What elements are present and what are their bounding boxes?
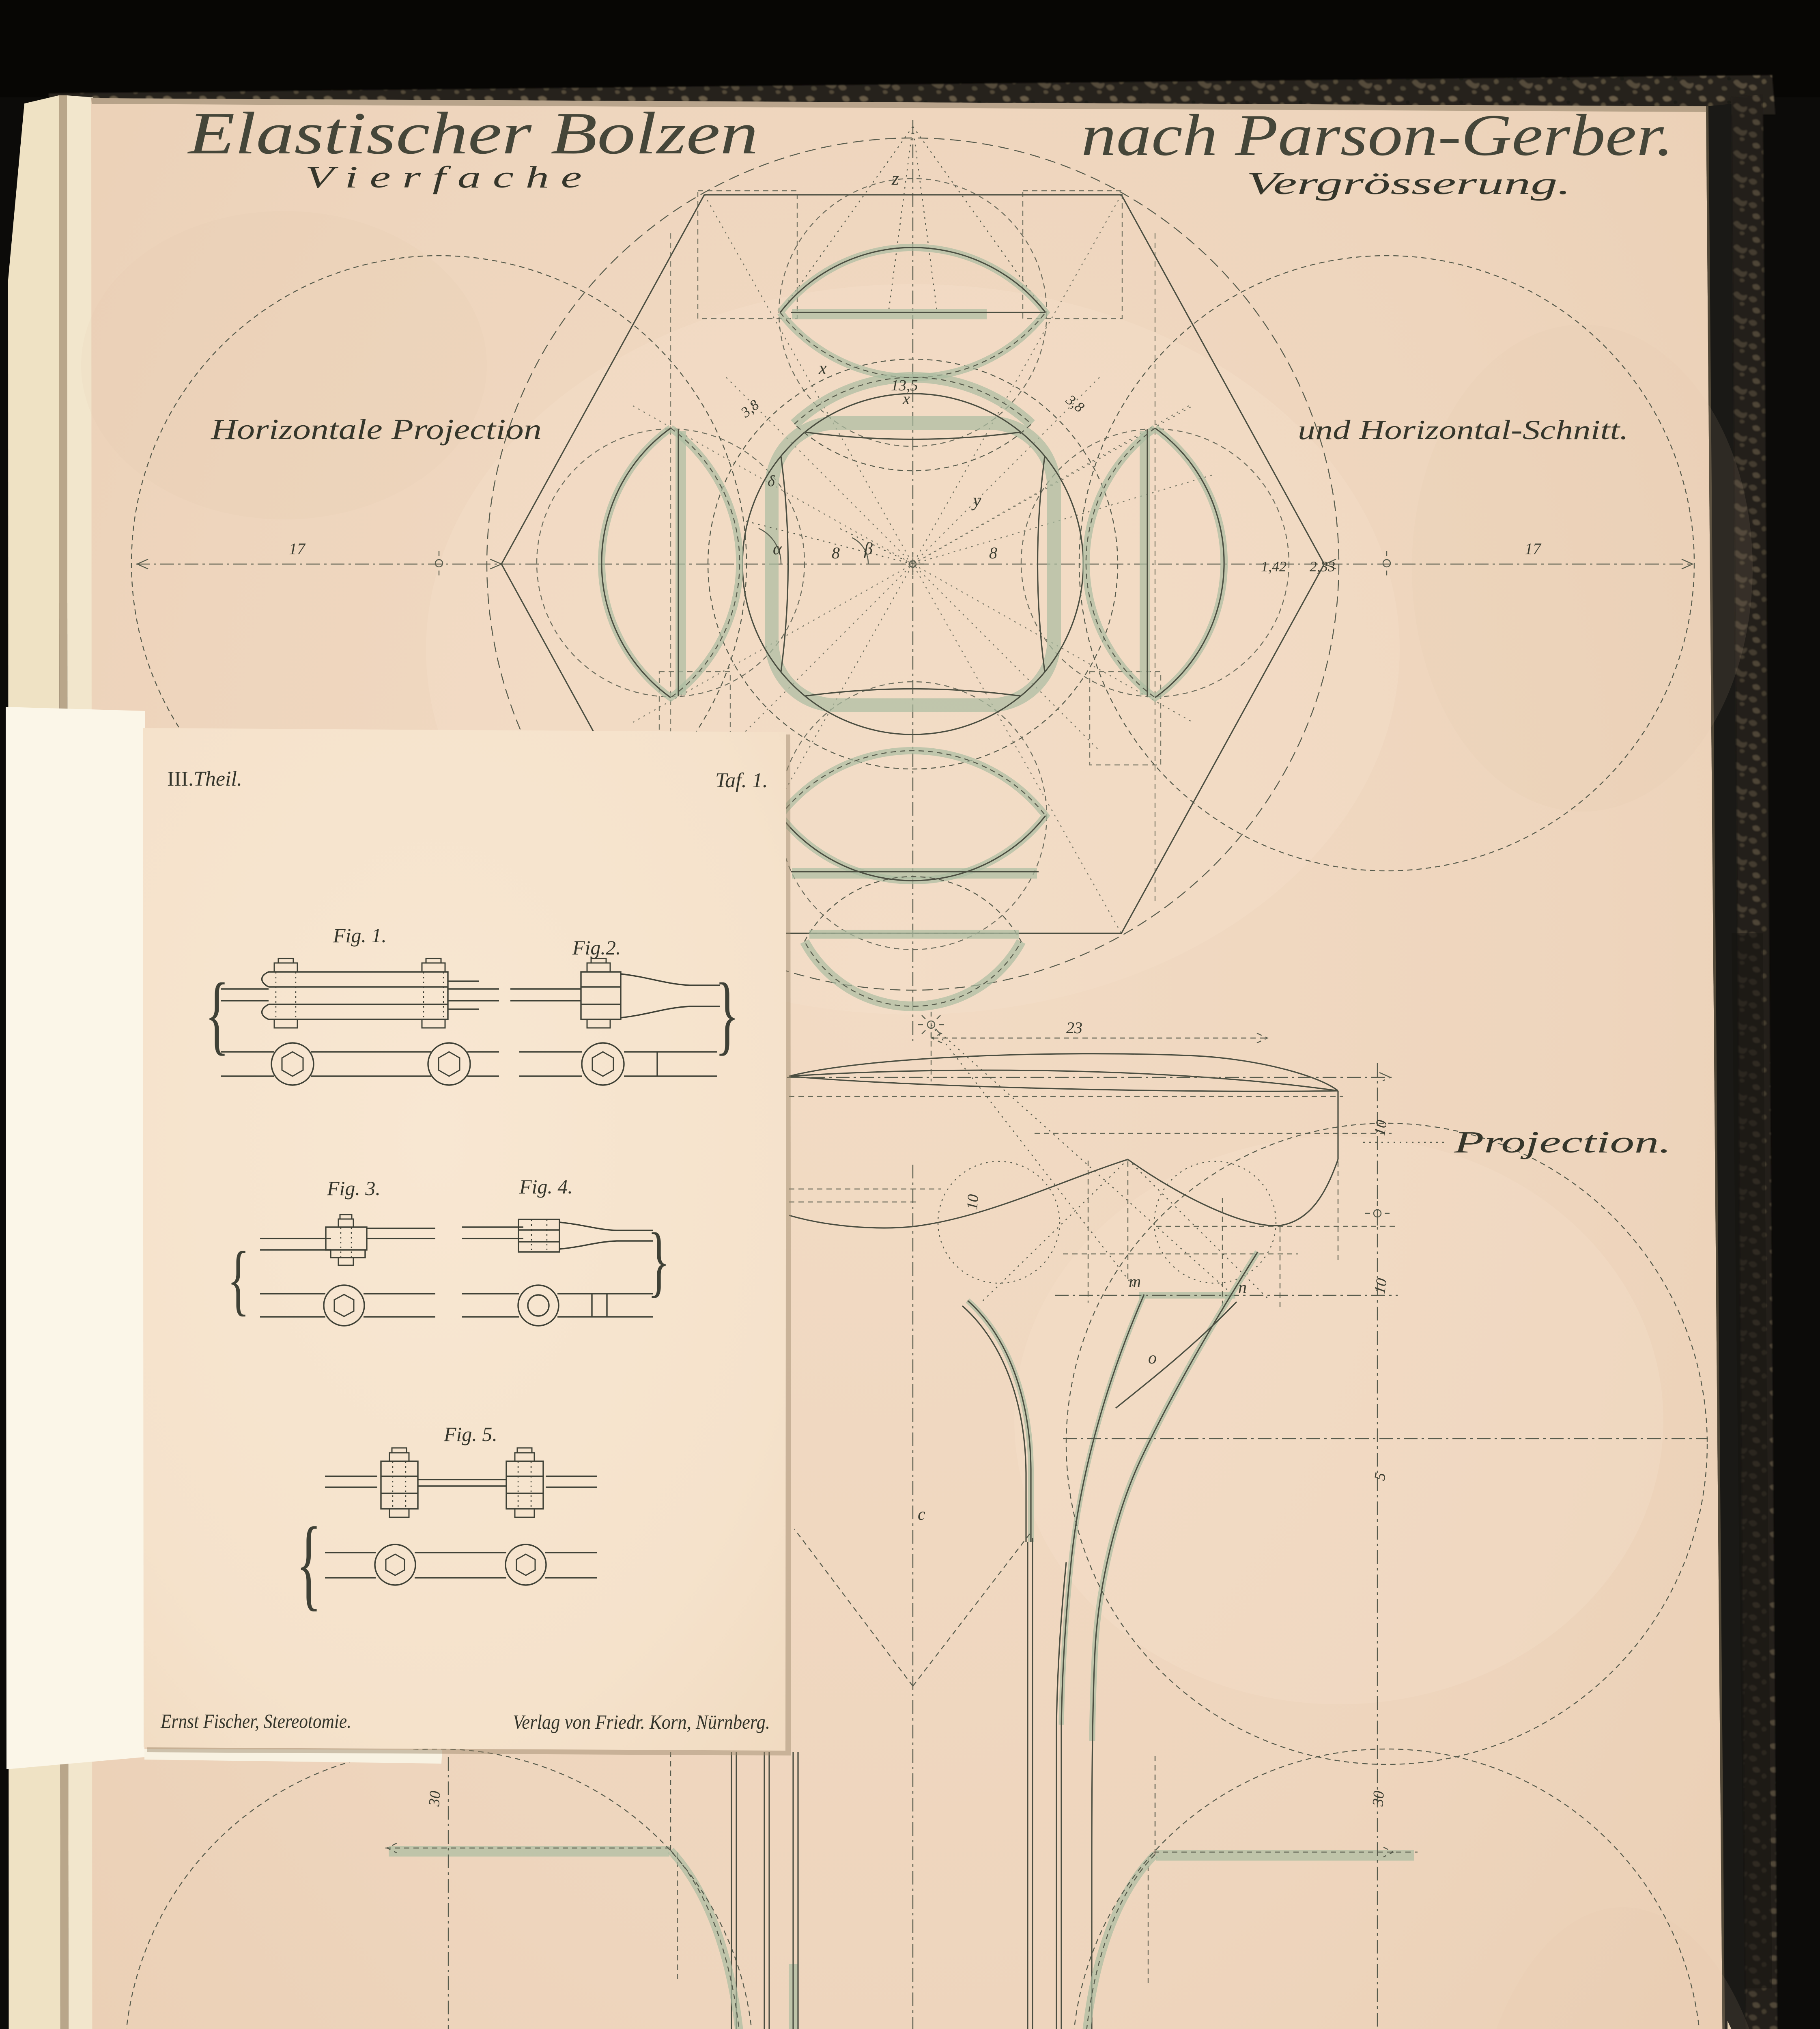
svg-text:V i e r f a c h e: V i e r f a c h e [305, 160, 582, 194]
svg-text:Verlag von Friedr. Korn, Nürnb: Verlag von Friedr. Korn, Nürnberg. [513, 1710, 770, 1733]
svg-text:17: 17 [289, 540, 306, 558]
svg-text:}: } [648, 1217, 670, 1305]
svg-text:{: { [205, 965, 229, 1063]
svg-text:m: m [1129, 1273, 1141, 1291]
svg-text:{: { [227, 1235, 250, 1323]
svg-text:Ernst Fischer, Stereotomie.: Ernst Fischer, Stereotomie. [160, 1710, 351, 1732]
svg-text:Taf. 1.: Taf. 1. [715, 769, 768, 792]
svg-text:23: 23 [1066, 1019, 1082, 1037]
svg-text:10: 10 [1371, 1277, 1391, 1295]
svg-text:}: } [715, 965, 739, 1063]
svg-text:Fig.2.: Fig.2. [572, 936, 621, 959]
svg-text:z: z [891, 168, 899, 189]
svg-text:Elastischer Bolzen: Elastischer Bolzen [187, 100, 758, 167]
svg-text:10: 10 [1371, 1119, 1391, 1137]
svg-text:β: β [864, 540, 873, 558]
svg-text:y: y [971, 490, 981, 510]
svg-text:1,42: 1,42 [1261, 558, 1286, 575]
svg-text:{: { [296, 1506, 321, 1620]
svg-text:13,5: 13,5 [891, 377, 918, 394]
svg-text:Horizontale Projection: Horizontale Projection [211, 413, 542, 446]
svg-text:8: 8 [832, 544, 840, 562]
svg-text:Vergrösserung.: Vergrösserung. [1246, 166, 1571, 201]
svg-text:Fig. 1.: Fig. 1. [333, 924, 387, 947]
svg-text:Fig. 4.: Fig. 4. [519, 1175, 573, 1198]
svg-text:Fig. 5.: Fig. 5. [443, 1423, 497, 1445]
svg-text:2,33: 2,33 [1310, 558, 1335, 575]
svg-text:n: n [1238, 1278, 1247, 1297]
svg-text:10: 10 [964, 1193, 982, 1211]
svg-text:o: o [1148, 1349, 1157, 1368]
svg-text:δ: δ [768, 473, 775, 490]
svg-text:c: c [918, 1505, 925, 1524]
svg-text:Fig. 3.: Fig. 3. [327, 1177, 381, 1200]
svg-text:8: 8 [989, 544, 997, 562]
svg-text:nach Parson-Gerber.: nach Parson-Gerber. [1081, 102, 1674, 168]
svg-text:30: 30 [1369, 1790, 1388, 1807]
svg-text:17: 17 [1525, 540, 1542, 558]
svg-text:III.Theil.: III.Theil. [167, 767, 242, 790]
svg-text:und Horizontal-Schnitt.: und Horizontal-Schnitt. [1298, 414, 1629, 445]
svg-text:30: 30 [426, 1790, 444, 1807]
svg-text:α: α [773, 540, 782, 558]
svg-text:x: x [818, 358, 827, 378]
svg-text:Projection.: Projection. [1453, 1125, 1671, 1159]
